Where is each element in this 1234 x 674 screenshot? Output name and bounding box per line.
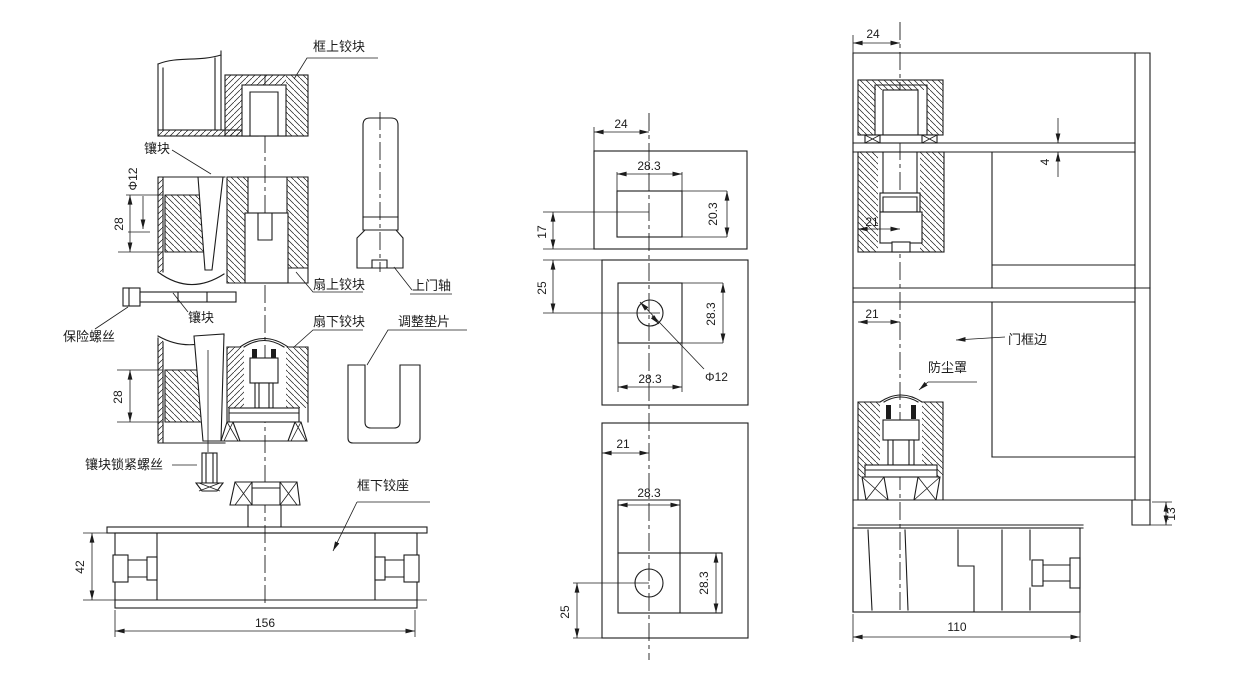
drawing-page: 框上铰块 Φ12 28 [0, 0, 1234, 674]
top-plate-view: 24 28.3 20.3 17 [535, 117, 747, 249]
dim-pin-diameter: Φ12 [126, 167, 140, 190]
dim-lower-pivot-offset: 21 [865, 307, 879, 321]
label-door-frame-edge: 门框边 [1008, 332, 1047, 347]
leaf-lower-hinge-block [221, 339, 308, 442]
dim-mid-slot-height: 28.3 [704, 302, 718, 326]
dim-upper-insert-depth: 28 [112, 217, 126, 231]
label-safety-screw: 保险螺丝 [63, 329, 115, 344]
dims-seat: 42 156 [73, 533, 427, 637]
technical-drawing: 框上铰块 Φ12 28 [0, 0, 1234, 674]
dim-seat-height: 42 [73, 560, 87, 574]
installed-door-top-block: 21 [858, 152, 944, 252]
installed-floor-seat [853, 528, 1080, 612]
plate-views: 24 28.3 20.3 17 28.3 28.3 25 Φ12 [535, 113, 748, 660]
dim-bottom-slot-width: 28.3 [637, 486, 661, 500]
adjusting-shim [348, 365, 420, 443]
dim-lower-insert-depth: 28 [111, 390, 125, 404]
installed-view: 21 4 21 [853, 22, 1178, 642]
leaf-upper-hinge-block [227, 177, 308, 283]
dim-bottom-margin: 25 [558, 605, 572, 619]
label-insert-mid: 镶块 [188, 310, 214, 325]
frame-upper-hinge-block [225, 75, 308, 136]
label-insert-upper: 镶块 [144, 141, 170, 156]
leader-adjusting-shim [367, 330, 467, 365]
dim-hole-diameter: Φ12 [705, 370, 728, 384]
dim-top-slot-height: 20.3 [706, 202, 720, 226]
frame-lower-hinge-seat [107, 482, 427, 608]
label-leaf-lower-hinge: 扇下铰块 [313, 314, 365, 329]
dim-top-slot-width: 28.3 [637, 159, 661, 173]
installed-door-bottom-assembly: 21 [858, 307, 943, 500]
dim-installed-seat-width: 110 [947, 620, 966, 634]
bottom-plate-view: 21 28.3 28.3 25 [558, 423, 748, 638]
dim-top-gap-group: 4 [1038, 118, 1058, 177]
upper-door-pivot-pin [357, 112, 403, 272]
dim-bottom-slot-height: 28.3 [697, 571, 711, 595]
leader-dust-cover [919, 382, 977, 390]
dim-frame-edge-offset: 24 [866, 27, 880, 41]
label-adjusting-shim: 调整垫片 [398, 314, 450, 329]
label-frame-upper-hinge: 框上铰块 [313, 39, 365, 54]
dim-seat-width: 156 [255, 616, 275, 630]
insert-wedge-bottom [194, 334, 224, 441]
label-leaf-upper-hinge: 扇上铰块 [313, 277, 365, 292]
dim-bottom-edge-offset: 21 [616, 437, 630, 451]
dims-upper-insert: Φ12 28 [112, 167, 163, 252]
label-upper-door-pivot: 上门轴 [412, 278, 451, 293]
leader-door-frame-edge [956, 337, 1005, 340]
label-frame-lower-seat: 框下铰座 [357, 478, 409, 493]
leader-leaf-lower-hinge [294, 330, 363, 347]
frame-profile-mid [158, 177, 225, 285]
dims-lower-insert: 28 [111, 370, 163, 422]
dim-top-bottom-margin: 17 [535, 225, 549, 239]
exploded-view: 框上铰块 Φ12 28 [63, 39, 467, 637]
leader-safety-screw [95, 307, 128, 329]
dim-mid-slot-width: 28.3 [638, 372, 662, 386]
dim-top-edge-offset: 24 [614, 117, 628, 131]
installed-upper-hinge-block [858, 80, 943, 143]
dim-mid-top-margin: 25 [535, 281, 549, 295]
safety-screw [123, 288, 236, 306]
dim-floor-thickness: 13 [1164, 507, 1178, 521]
dim-upper-pivot-offset: 21 [865, 215, 879, 229]
label-dust-cover: 防尘罩 [928, 360, 967, 375]
label-insert-lock-screw: 镶块锁紧螺丝 [85, 457, 163, 472]
leader-insert-upper [172, 150, 211, 174]
insert-lock-screw [196, 453, 223, 491]
frame-profile-bottom [158, 334, 225, 452]
middle-plate-view: 28.3 28.3 25 Φ12 [535, 260, 748, 405]
dim-top-gap: 4 [1038, 158, 1052, 165]
insert-wedge-mid [198, 177, 223, 270]
